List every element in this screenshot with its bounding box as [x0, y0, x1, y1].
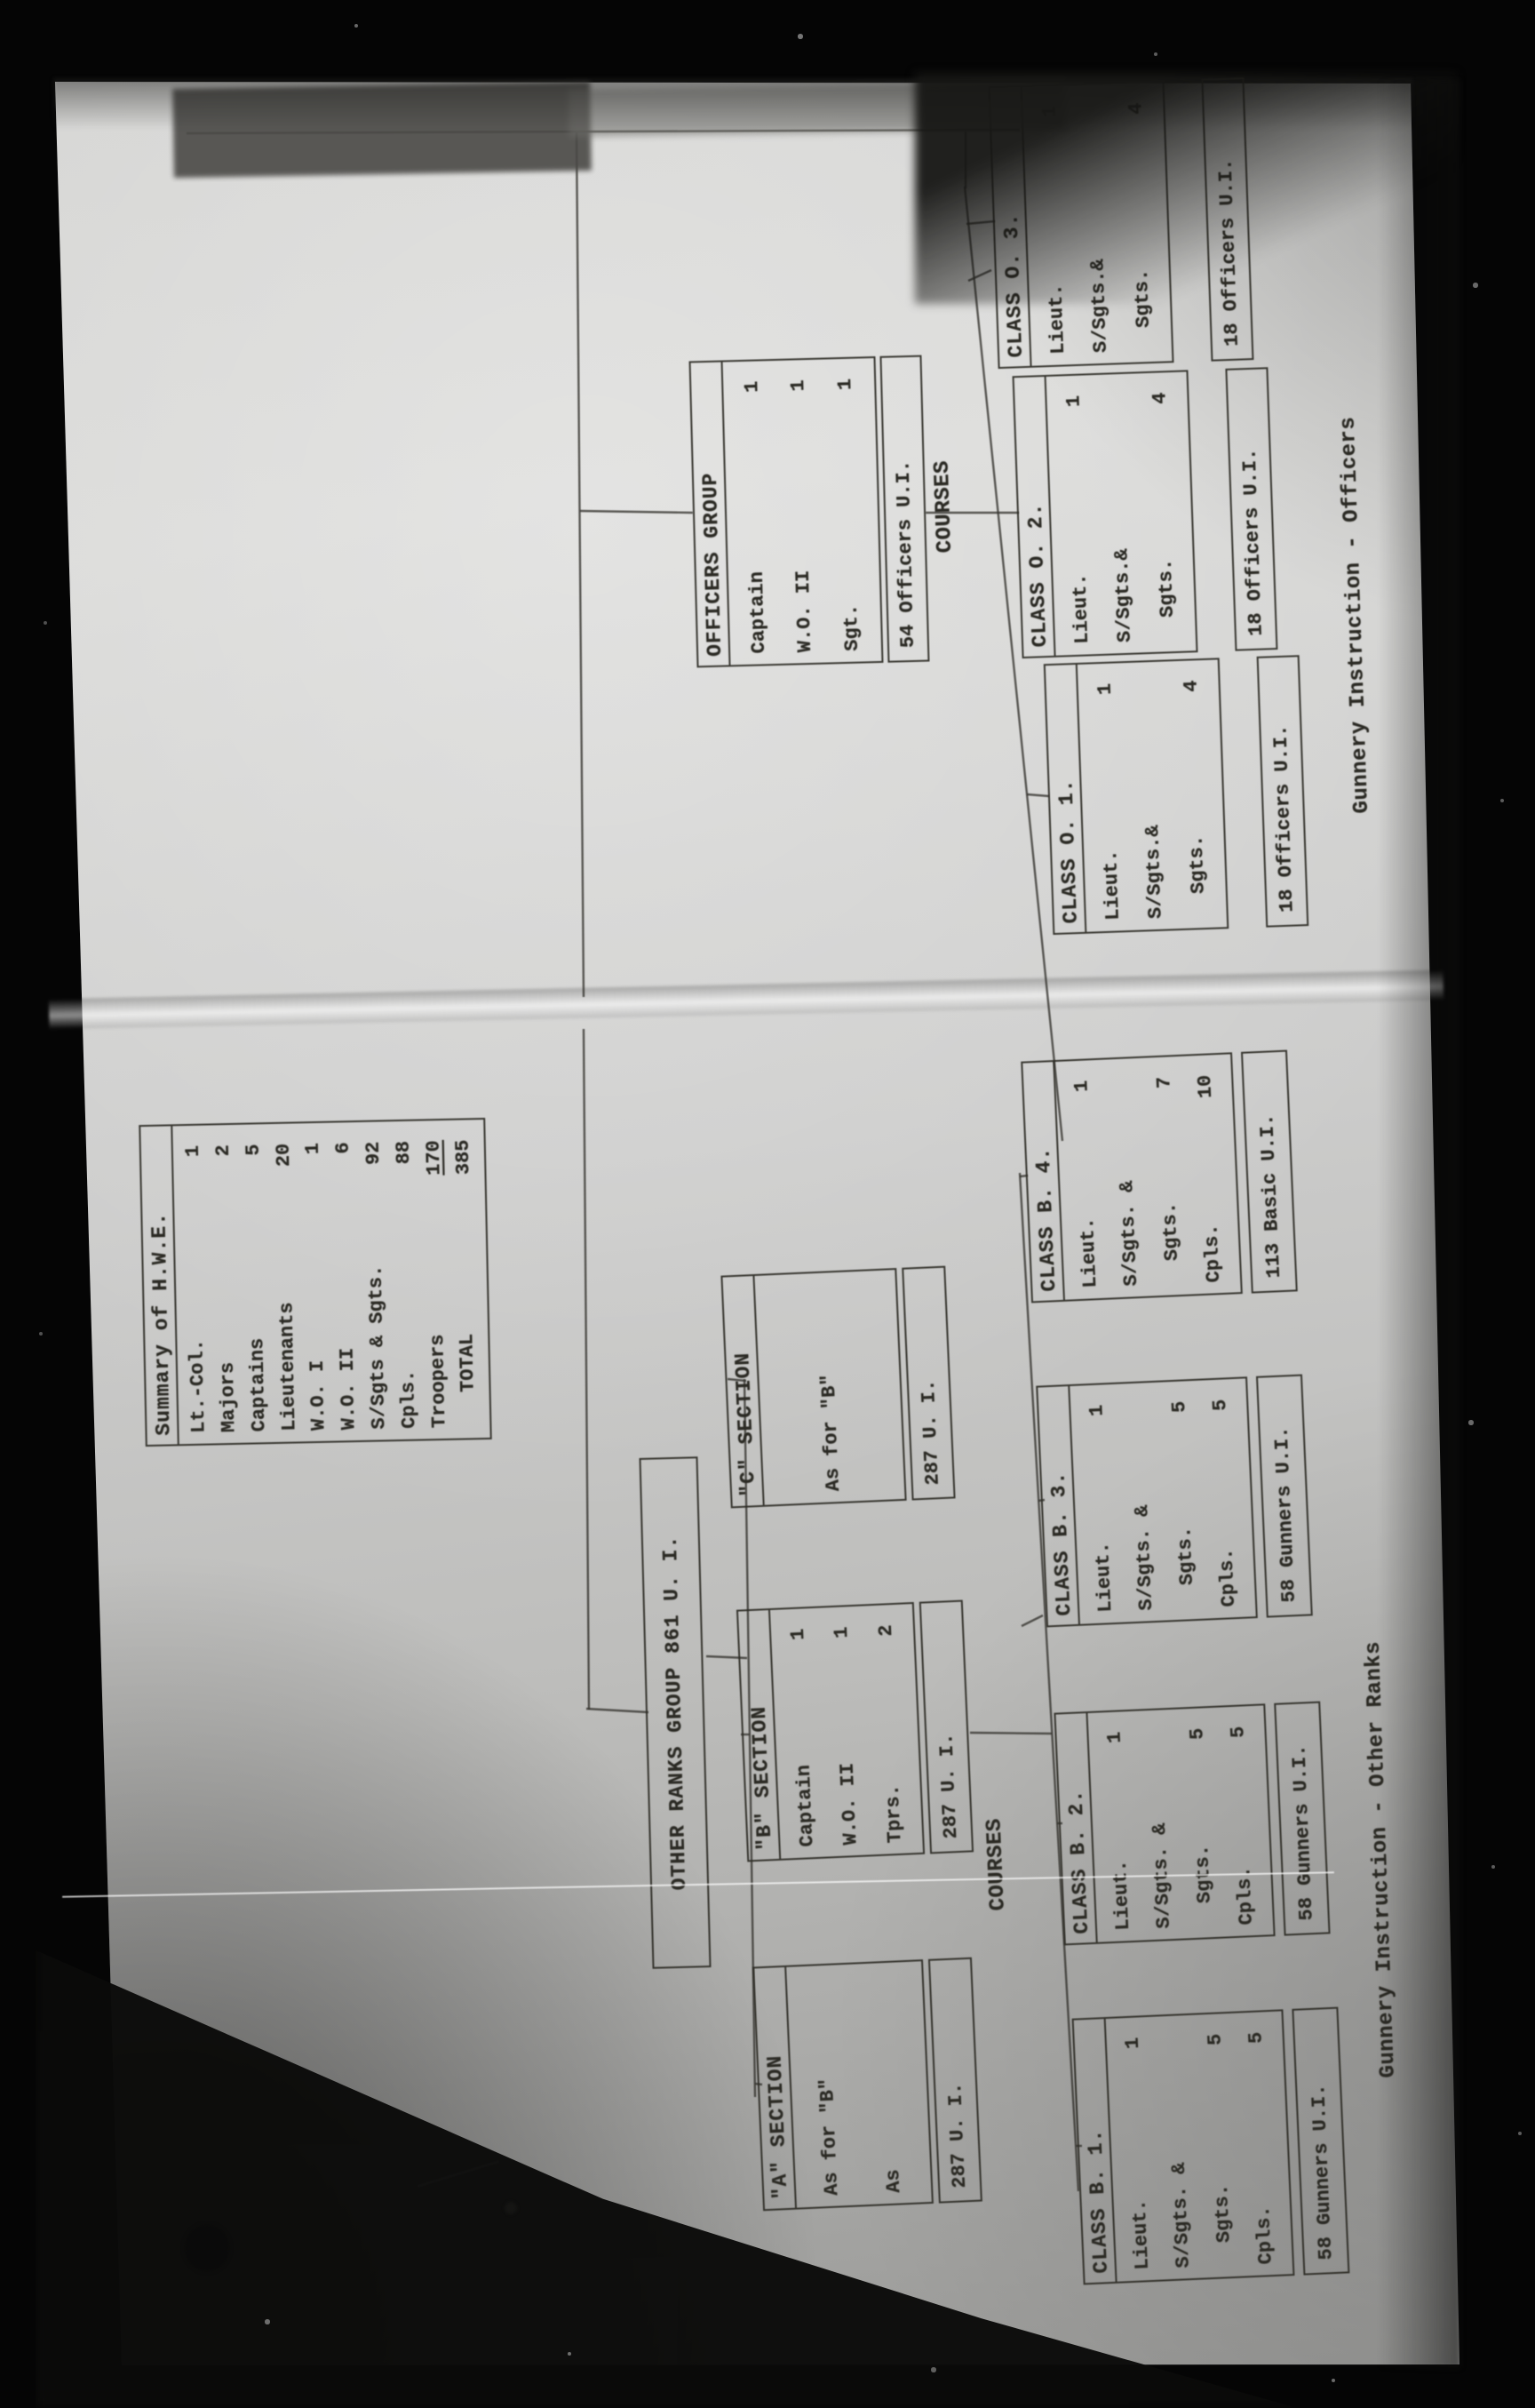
rank-label: As for "B" — [818, 1374, 846, 1492]
rank-row: S/Sgts. & — [1111, 1069, 1143, 1287]
section-b-box: "B" SECTION Captain1W.O. II1Tprs.2 287 U… — [736, 1600, 974, 1862]
box-strip: 18 Officers U.I. — [1257, 655, 1309, 927]
rank-row: W.O. II1 — [831, 1617, 863, 1846]
rank-row: W.O. II6 — [332, 1133, 361, 1430]
section-a-box: "A" SECTION As for "B"As 287 U. I. — [752, 1957, 982, 2212]
rank-label: Lt.-Col. — [187, 1339, 211, 1433]
box-body: Lieut.1S/Sgts. & Sgts.5Cpls.5 — [1087, 1705, 1273, 1942]
rank-value: 1 — [1103, 1722, 1126, 1743]
rank-label: W.O. II — [792, 570, 817, 652]
rank-row: Tprs.2 — [874, 1615, 906, 1844]
rank-label: W.O. II — [337, 1348, 361, 1431]
rank-label: Cpls. — [397, 1370, 421, 1430]
rank-label: Lieut. — [1092, 1542, 1117, 1613]
rank-label: Lieut. — [1100, 849, 1125, 921]
rank-value: 4 — [1149, 383, 1172, 404]
rank-value — [1137, 673, 1160, 682]
rank-label: Lieut. — [1077, 1217, 1102, 1288]
rank-value: 7 — [1152, 1067, 1175, 1088]
rank-label: Sgts. — [1158, 1202, 1184, 1285]
rank-label: Lieut. — [1109, 1860, 1134, 1931]
rank-label: Lieut. — [1128, 2199, 1154, 2270]
rank-row: W.O. I1 — [302, 1134, 330, 1431]
box-body: As for "B" — [754, 1270, 904, 1505]
rank-label: As — [883, 2169, 906, 2193]
box-body: As for "B"As — [786, 1961, 932, 2207]
rank-row: S/Sgts. & — [1162, 2026, 1195, 2268]
rank-row: Sgts.4 — [1149, 383, 1180, 642]
rank-label: Sgts. — [1173, 1527, 1199, 1609]
rank-row: W.O. II1 — [787, 371, 817, 653]
microfilm-scan: { "summary": { "title": "Summary of H.W.… — [0, 0, 1535, 2388]
rank-label: TOTAL — [457, 1334, 481, 1428]
rank-row: As for "B" — [812, 1976, 844, 2197]
rank-row: Sgts.4 — [1180, 671, 1211, 918]
rank-row: Lieut.1 — [1085, 1395, 1117, 1613]
rank-label: Sgts. — [1155, 558, 1181, 641]
rank-value: 1 — [787, 371, 810, 392]
rank-row: Sgts.5 — [1185, 1718, 1216, 1927]
rank-row: TOTAL385 — [452, 1130, 481, 1427]
class-o2-box: CLASS O. 2. Lieut.1S/Sgts.& Sgts.4 18 Of… — [1013, 367, 1285, 658]
rank-label: Tprs. — [881, 1784, 906, 1844]
rank-label: Cpls. — [1253, 2205, 1277, 2265]
rank-row: Lieut.1 — [1070, 1071, 1102, 1288]
rank-value: 1 — [741, 371, 764, 393]
rank-value: 5 — [242, 1135, 265, 1156]
rank-label: S/Sgts. & — [1131, 1504, 1157, 1611]
rank-row: Sgts.5 — [1204, 2024, 1237, 2267]
rank-row: S/Sgts. & — [1126, 1393, 1158, 1611]
rank-value: 1 — [834, 370, 857, 391]
rank-value: 88 — [392, 1132, 415, 1165]
rank-value: 1 — [1085, 1395, 1108, 1416]
rank-row: Cpls.88 — [392, 1132, 420, 1429]
rank-value — [1105, 385, 1128, 395]
rank-value — [1162, 2026, 1185, 2036]
box-body: Lieut.1S/Sgts. & Sgts.5Cpls.5 — [1070, 1378, 1256, 1623]
rank-value: 6 — [332, 1133, 355, 1154]
rank-value: 20 — [272, 1134, 295, 1167]
rank-value: 1 — [831, 1617, 854, 1639]
rank-row: S/Sgts.& — [1105, 385, 1136, 643]
box-body: Lieut.1S/Sgts.& Sgts.4 — [1046, 371, 1197, 655]
rank-label: S/Sgts. & — [1116, 1180, 1142, 1287]
rank-label: Captain — [745, 571, 770, 654]
rank-value: 2 — [874, 1615, 897, 1637]
rank-value — [1144, 1720, 1167, 1730]
film-dust-specks — [0, 0, 2, 2]
rank-row: Sgts.7 — [1152, 1067, 1184, 1285]
rank-label: W.O. I — [306, 1359, 330, 1431]
rank-value: 1 — [787, 1619, 810, 1640]
rank-value: 1 — [1070, 1071, 1093, 1092]
rank-value — [812, 1976, 835, 1986]
class-b1-box: CLASS B. 1. Lieut.1S/Sgts. & Sgts.5Cpls.… — [1072, 2007, 1350, 2285]
rank-value: 170 — [422, 1131, 445, 1176]
page-right-shadow — [1379, 80, 1460, 2368]
rank-row: Lieut.1 — [1062, 386, 1094, 644]
rank-label: Lieut. — [1069, 573, 1094, 644]
rank-row: Cpls.5 — [1227, 1717, 1258, 1926]
rank-value: 1 — [1062, 386, 1086, 407]
rank-value — [1111, 1069, 1134, 1079]
rank-value: 92 — [362, 1132, 386, 1165]
rank-label: Sgts. — [1186, 834, 1212, 917]
rank-row: Cpls.5 — [1209, 1390, 1241, 1607]
rank-label: W.O. II — [837, 1762, 863, 1845]
rank-label: Captain — [793, 1765, 819, 1847]
rank-label: S/Sgts & Sgts. — [365, 1264, 391, 1429]
section-c-box: "C" SECTION As for "B" 287 U. I. — [720, 1266, 955, 1509]
rank-value: 5 — [1167, 1391, 1190, 1413]
class-b2-box: CLASS B. 2. Lieut.1S/Sgts. & Sgts.5Cpls.… — [1054, 1702, 1330, 1946]
rank-label: Cpls. — [1215, 1548, 1240, 1607]
rank-row: Lieutenants20 — [272, 1134, 300, 1431]
rank-value — [814, 1283, 837, 1293]
rank-row: S/Sgts & Sgts.92 — [362, 1132, 391, 1429]
rank-label: S/Sgts.& — [1142, 825, 1168, 919]
rank-value: 2 — [212, 1136, 235, 1157]
rank-value: 385 — [452, 1130, 475, 1175]
rank-value: 4 — [1180, 671, 1203, 692]
rank-value: 1 — [302, 1134, 325, 1155]
rank-row: Lieut.1 — [1121, 2028, 1154, 2270]
box-strip: 18 Officers U.I. — [1225, 367, 1277, 650]
box-body: Lieut.1S/Sgts. & Sgts.7Cpls.10 — [1054, 1054, 1241, 1299]
rank-value — [874, 1973, 897, 1982]
officers-group-box: OFFICERS GROUP Captain1W.O. II1Sgt.1 54 … — [689, 355, 930, 668]
class-b3-box: CLASS B. 3. Lieut.1S/Sgts. & Sgts.5Cpls.… — [1036, 1375, 1313, 1628]
rank-label: Troopers — [426, 1334, 451, 1428]
rank-label: Sgts. — [1191, 1845, 1217, 1927]
class-b4-box: CLASS B. 4. Lieut.1S/Sgts. & Sgts.7Cpls.… — [1021, 1050, 1298, 1304]
rank-row: Sgts.5 — [1167, 1391, 1199, 1609]
rank-row: Cpls.10 — [1194, 1065, 1226, 1283]
rank-row: Captain1 — [741, 371, 771, 654]
rank-label: Captains — [246, 1337, 271, 1431]
rank-row: Troopers170 — [422, 1131, 450, 1428]
top-right-shadow — [915, 73, 1457, 304]
rank-label: S/Sgts. & — [1168, 2162, 1195, 2268]
rank-value: 5 — [1209, 1390, 1232, 1411]
rank-row: As for "B" — [814, 1283, 845, 1492]
summary-box: Summary of H.W.E. Lt.-Col.1Majors2Captai… — [139, 1118, 491, 1447]
rank-row: Cpls.5 — [1245, 2022, 1277, 2265]
rank-value: 1 — [1094, 674, 1117, 695]
class-o1-box: CLASS O. 1. Lieut.1S/Sgts.& Sgts.4 18 Of… — [1044, 655, 1316, 935]
rank-label: As for "B" — [816, 2077, 844, 2196]
rank-row: Captains5 — [242, 1135, 270, 1431]
rank-value — [1126, 1393, 1149, 1403]
ink-speck — [505, 2202, 517, 2214]
box-body: Lieut.1S/Sgts. & Sgts.5Cpls.5 — [1106, 2011, 1293, 2281]
box-body: Captain1W.O. II1Sgt.1 — [723, 358, 882, 665]
hole-punch-blob — [185, 2225, 229, 2271]
summary-rows: Lt.-Col.1Majors2Captains5Lieutenants20W.… — [172, 1120, 489, 1444]
rank-row: Lieut.1 — [1103, 1722, 1134, 1931]
rank-value: 5 — [1185, 1718, 1208, 1740]
rank-value: 1 — [182, 1136, 205, 1158]
rank-row: S/Sgts. & — [1144, 1720, 1175, 1929]
box-body: Captain1W.O. II1Tprs.2 — [770, 1604, 923, 1859]
box-strip: 54 Officers U.I. — [879, 355, 929, 663]
rank-row: Lieut.1 — [1094, 674, 1125, 921]
rank-row: Sgt.1 — [834, 370, 864, 652]
rank-label: Sgts. — [1210, 2184, 1236, 2267]
rank-row: As — [874, 1973, 906, 2193]
rank-label: Sgt. — [840, 604, 864, 651]
rank-value: 5 — [1227, 1717, 1250, 1738]
box-body: Lieut.1S/Sgts.& Sgts.4 — [1078, 659, 1227, 931]
rank-label: S/Sgts.& — [1111, 548, 1137, 642]
rank-row: S/Sgts.& — [1137, 673, 1168, 920]
rank-label: Cpls. — [1200, 1224, 1225, 1283]
rank-row: Lt.-Col.1 — [182, 1136, 211, 1433]
rank-label: Lieutenants — [275, 1302, 300, 1431]
rank-value: 1 — [1121, 2028, 1144, 2049]
rank-row: Majors2 — [212, 1136, 241, 1432]
rank-label: Majors — [217, 1362, 241, 1433]
rank-value: 5 — [1204, 2024, 1227, 2045]
rank-row: Captain1 — [787, 1619, 819, 1847]
rank-value: 10 — [1194, 1065, 1218, 1098]
rank-value: 5 — [1245, 2022, 1268, 2044]
